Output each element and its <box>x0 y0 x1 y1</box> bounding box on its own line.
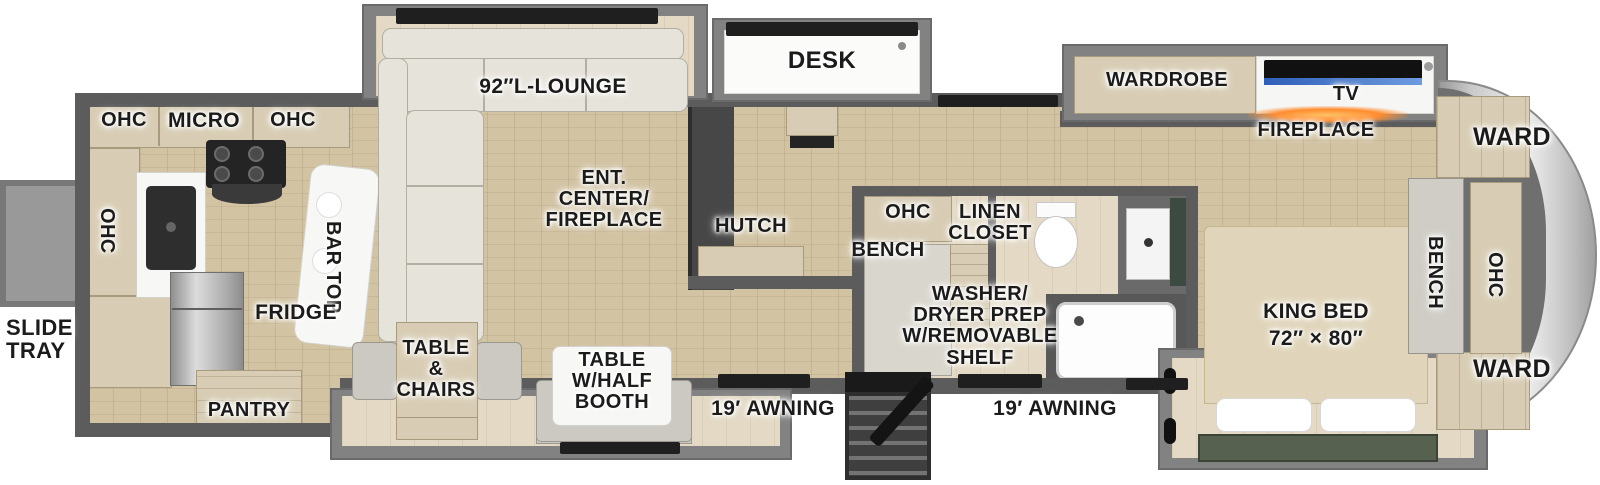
fridge-label: FRIDGE <box>246 302 346 324</box>
king-bed-label: KING BED 72″ × 80″ <box>1224 298 1408 353</box>
front-bench-label: BENCH <box>1424 208 1445 338</box>
ward-top-label: WARD <box>1452 124 1572 151</box>
bath-bench-label: BENCH <box>840 240 936 261</box>
kitchen-base-cabinet <box>88 296 172 388</box>
slide-tray-label: SLIDE TRAY <box>2 316 88 363</box>
hutch-label: HUTCH <box>694 216 808 237</box>
bottom-window <box>958 374 1042 388</box>
tv-label: TV <box>1316 84 1376 105</box>
ent-center-label: ENT. CENTER/ FIREPLACE <box>524 168 684 232</box>
stove-burner <box>248 166 264 182</box>
fridge-door-line <box>172 308 242 310</box>
bed-pillow <box>1216 398 1312 432</box>
stove-burner <box>214 166 230 182</box>
desk-window <box>726 22 918 36</box>
kitchen-micro-label: MICRO <box>156 110 252 132</box>
lounge-window <box>396 8 658 24</box>
bath-ohc-label: OHC <box>868 202 948 223</box>
sofa-chaise-back <box>378 58 408 342</box>
kitchen-ohc-right-label: OHC <box>254 110 332 131</box>
front-ohc-label: OHC <box>1484 230 1505 320</box>
washer-dryer-label: WASHER/ DRYER PREP W/REMOVABLE SHELF <box>886 284 1074 369</box>
tv <box>1264 60 1422 80</box>
kitchen-ohc-left-label: OHC <box>92 110 156 131</box>
desk-label: DESK <box>742 48 902 73</box>
floorplan-canvas: SLIDE TRAY OHC MICRO OHC OHC BAR TOP FRI… <box>0 0 1600 485</box>
fireplace-label: FIREPLACE <box>1240 120 1392 141</box>
sofa-back <box>382 28 684 60</box>
bed-slide-handle <box>1164 418 1176 444</box>
linen-closet-label: LINEN CLOSET <box>938 202 1042 244</box>
kitchen-ohc-side-label: OHC <box>96 176 117 286</box>
stove-burner <box>214 146 230 162</box>
ward-bottom-label: WARD <box>1452 356 1572 383</box>
lounge-label: 92″L-LOUNGE <box>448 76 658 98</box>
rear-wall <box>75 93 90 437</box>
vanity-backsplash <box>1170 198 1186 286</box>
tv-speaker <box>1424 62 1433 71</box>
table-booth-label: TABLE W/HALF BOOTH <box>552 350 672 414</box>
desk-console <box>786 102 838 136</box>
bed-pillow <box>1320 398 1416 432</box>
hall-partition-wall <box>688 276 864 289</box>
bath-window <box>1126 378 1188 390</box>
bath-top-wall <box>852 186 1198 196</box>
hall-window <box>938 95 1058 107</box>
sofa-chaise-seats <box>406 110 484 342</box>
awning-right-label: 19′ AWNING <box>982 398 1128 420</box>
range-hood <box>212 184 282 204</box>
wardrobe-label: WARDROBE <box>1080 70 1254 91</box>
sink-faucet <box>166 222 176 232</box>
bath-left-wall <box>852 186 864 392</box>
pantry-label: PANTRY <box>194 400 304 421</box>
bath-sink-faucet <box>1144 238 1153 247</box>
desk-console-base <box>790 136 834 148</box>
table-chairs-label: TABLE & CHAIRS <box>366 338 506 402</box>
bottom-window <box>718 374 810 388</box>
stove-burner <box>248 146 264 162</box>
tub-drain <box>1074 316 1084 326</box>
bed-footboard-bench <box>1198 434 1438 462</box>
awning-left-label: 19′ AWNING <box>700 398 846 420</box>
kitchen-bottom-wall <box>75 423 354 437</box>
fridge <box>170 272 244 386</box>
dinette-window <box>560 442 680 454</box>
